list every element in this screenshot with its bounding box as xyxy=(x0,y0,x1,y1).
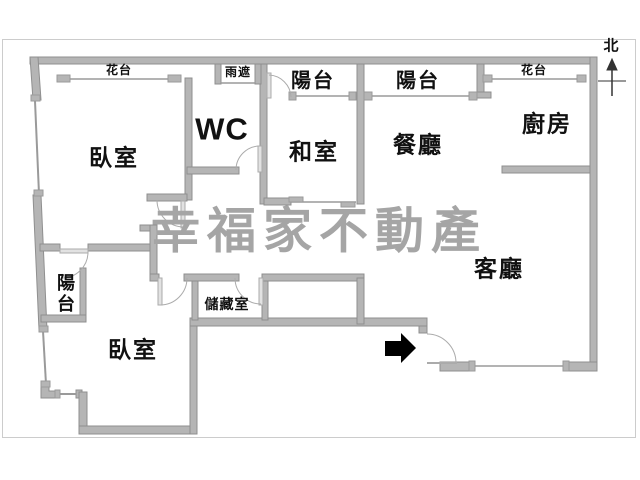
entrance-arrow-icon xyxy=(385,333,416,363)
room-label-kitchen: 廚房 xyxy=(522,113,572,136)
room-label-bedroom-bottom: 臥室 xyxy=(108,339,158,362)
room-label-balcony-top-right: 陽台 xyxy=(396,71,440,91)
room-label-bedroom-top: 臥室 xyxy=(89,147,139,170)
room-label-tatami: 和室 xyxy=(289,141,339,164)
room-label-wc: WC xyxy=(195,114,249,145)
annotation-flower-stand-right: 花台 xyxy=(521,64,547,76)
room-label-balcony-left: 陽台 xyxy=(56,273,74,315)
floorplan-image: 幸福家不動產 臥室 WC 和室 餐廳 廚房 客廳 臥室 儲藏室 陽台 陽台 陽台… xyxy=(0,0,640,480)
north-label: 北 xyxy=(603,39,618,54)
watermark: 幸福家不動產 xyxy=(151,208,487,257)
north-compass-icon xyxy=(598,59,626,96)
annotation-rain-cover: 雨遮 xyxy=(225,66,251,78)
annotation-flower-stand-left: 花台 xyxy=(106,64,132,76)
room-label-balcony-top-center: 陽台 xyxy=(291,71,335,91)
room-label-storage: 儲藏室 xyxy=(205,297,250,311)
room-label-living: 客廳 xyxy=(474,258,524,281)
room-label-dining: 餐廳 xyxy=(393,134,443,157)
